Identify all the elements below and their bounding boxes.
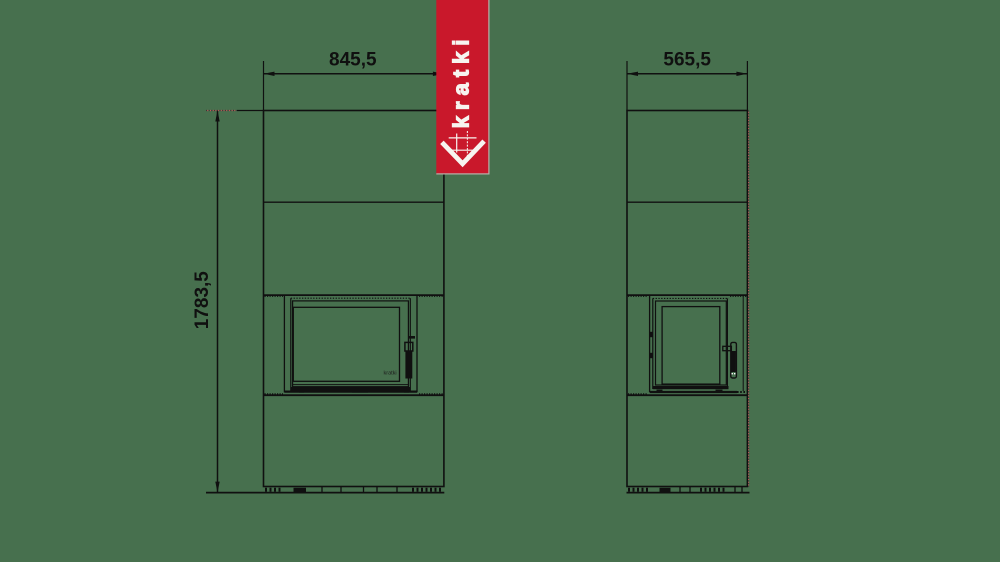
svg-text:845,5: 845,5 <box>329 50 377 71</box>
svg-text:kratki: kratki <box>384 371 397 377</box>
svg-text:kratki: kratki <box>449 33 474 128</box>
svg-text:1783,5: 1783,5 <box>192 271 213 330</box>
svg-text:565,5: 565,5 <box>663 50 711 71</box>
